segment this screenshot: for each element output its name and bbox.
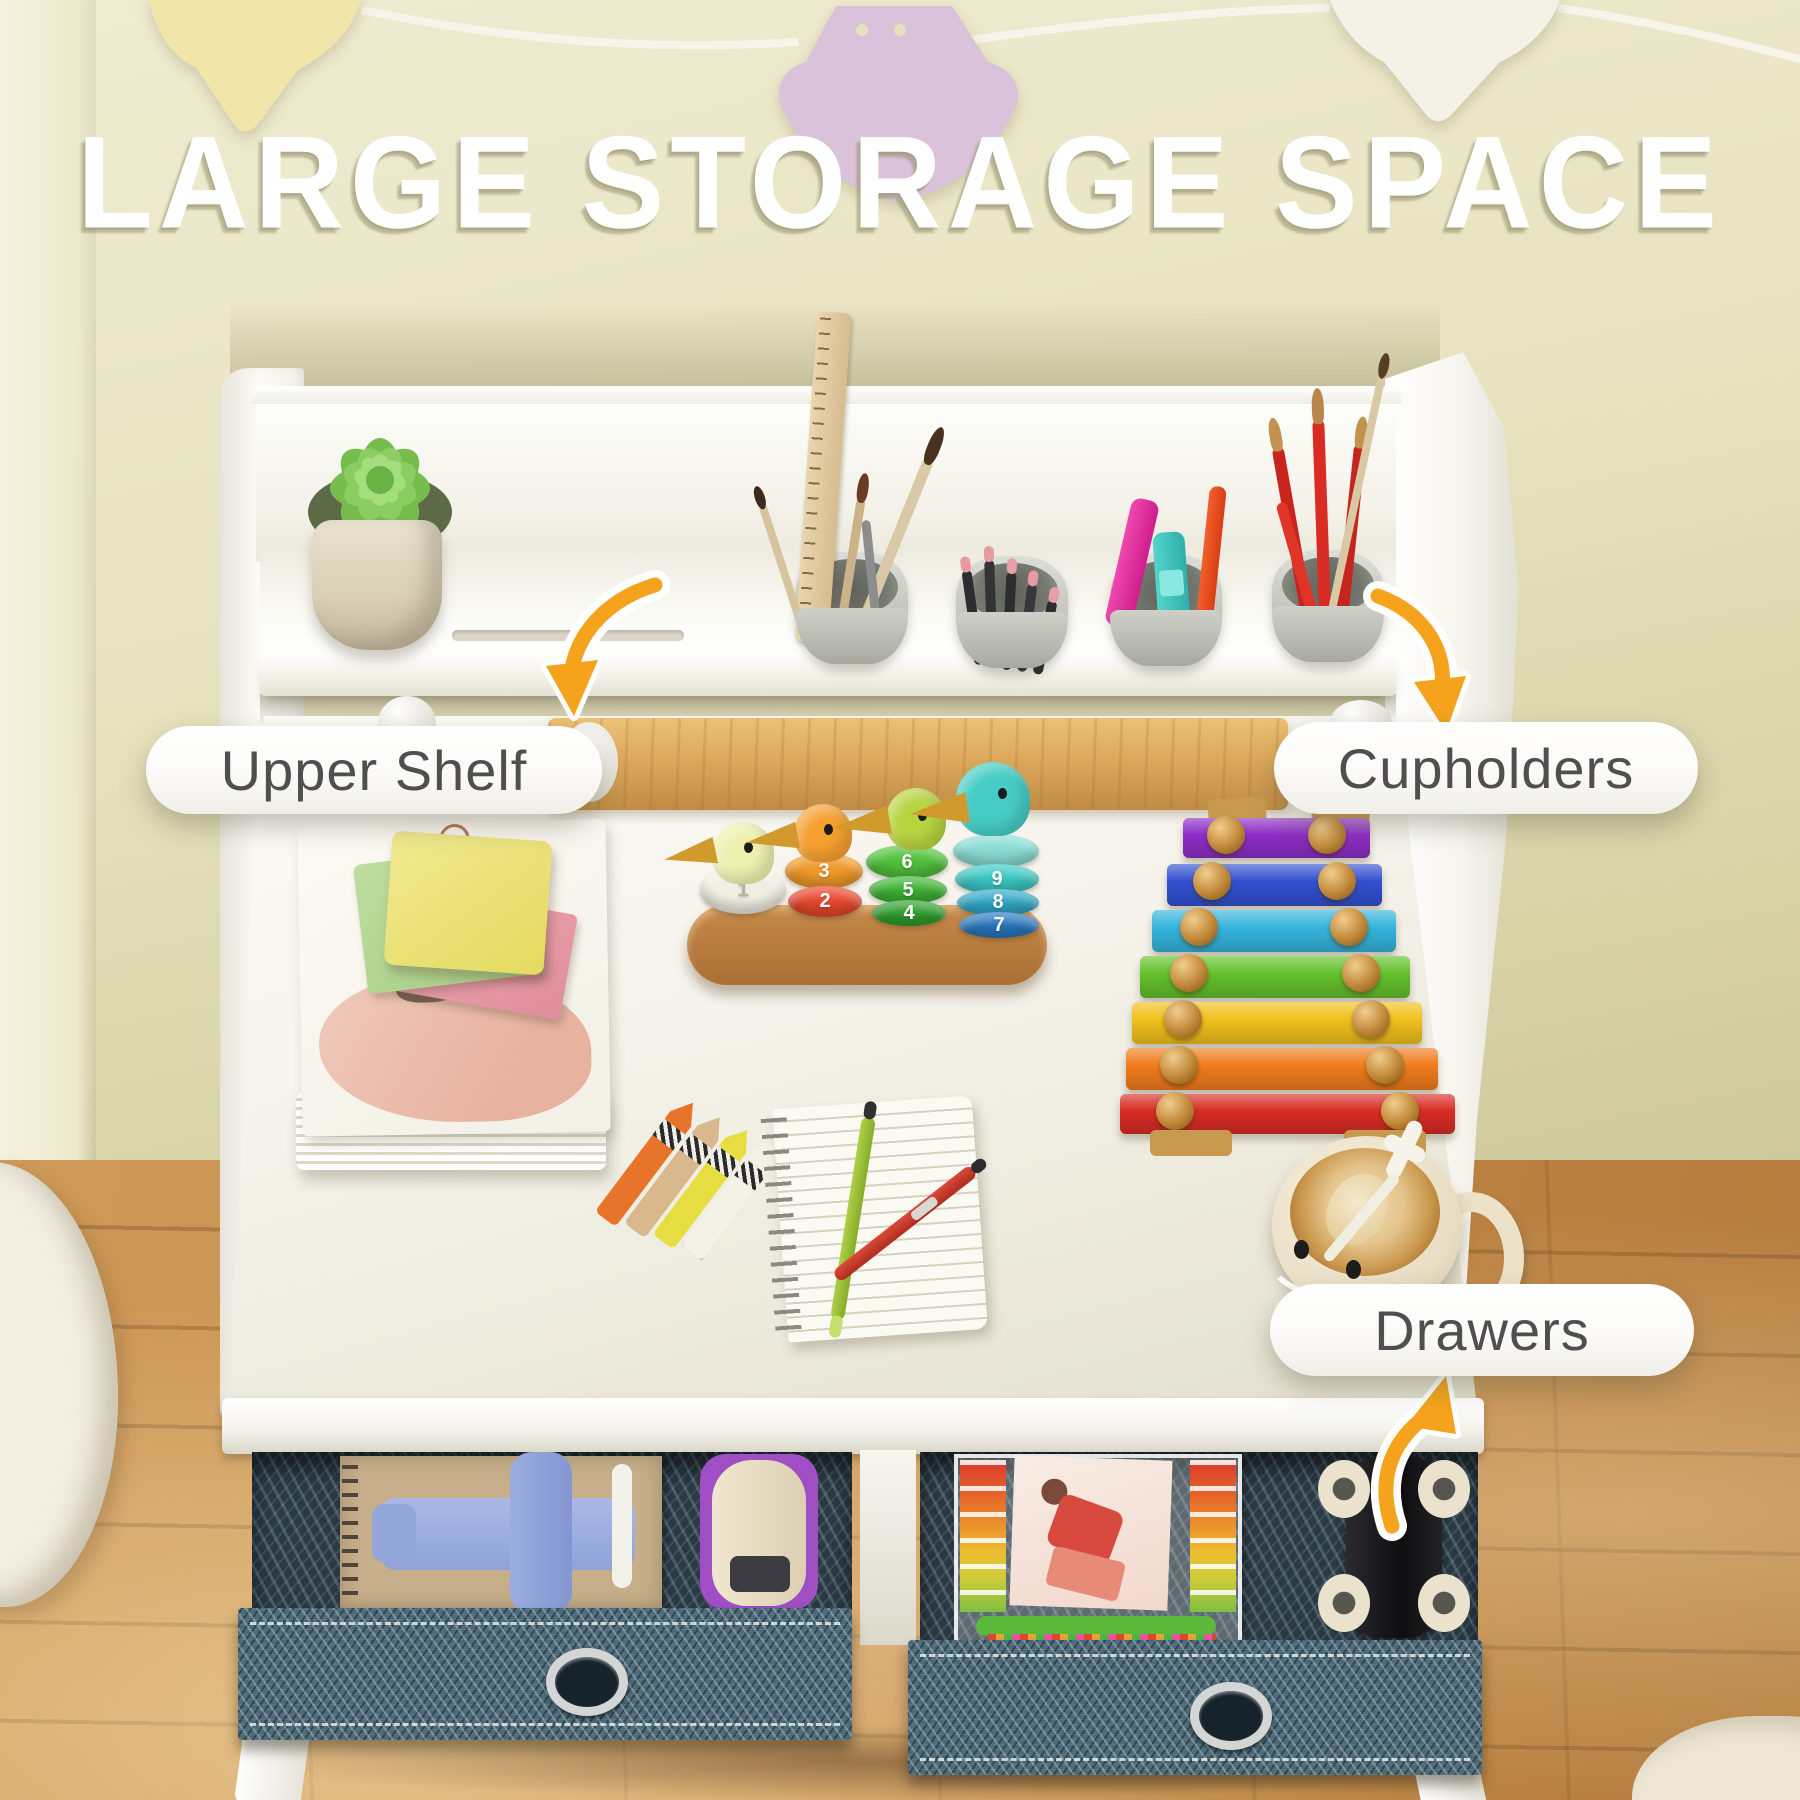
succulent-plant: [292, 392, 472, 567]
xylophone-knob: [1330, 908, 1368, 946]
duck-head: [794, 804, 852, 862]
marker-column: [960, 1460, 1006, 1612]
left-drawer-handle[interactable]: [546, 1648, 628, 1716]
green-marker-horizontal: [976, 1616, 1216, 1636]
drawer-divider: [860, 1450, 916, 1645]
duck-ring: [953, 834, 1039, 868]
xylophone-bar-green: [1140, 956, 1410, 998]
ice-cream-flag-white: [1328, 0, 1562, 121]
desk-front-apron: [222, 1398, 1484, 1454]
right-drawer-handle[interactable]: [1190, 1682, 1272, 1750]
airplane-fuselage: [510, 1452, 572, 1614]
duck-ring: 7: [959, 912, 1039, 938]
xylophone-knob: [1207, 816, 1245, 854]
xylophone-bar-yellow: [1132, 1002, 1422, 1044]
cupholders-label-text: Cupholders: [1338, 736, 1634, 801]
marker-band: [1159, 569, 1185, 597]
toy-airplane: [372, 1452, 652, 1614]
xylophone-knob: [1193, 862, 1231, 900]
airplane-tail: [372, 1504, 416, 1562]
duck-eye: [824, 824, 833, 835]
product-feature-image: LARGE STORAGE SPACE: [0, 0, 1800, 1800]
airplane-propeller: [612, 1464, 632, 1588]
xylophone-bar-blue: [1167, 864, 1382, 906]
duck-ring: 6: [866, 845, 948, 879]
duck-head: [956, 762, 1030, 836]
spiral-notebook: [772, 1095, 988, 1342]
duck-eye: [998, 788, 1007, 799]
xylophone-knob: [1342, 954, 1380, 992]
xylophone-bar-purple: [1183, 818, 1370, 858]
car-wheel: [1318, 1460, 1370, 1518]
right-drawer-front[interactable]: [908, 1640, 1482, 1775]
eraser-tip: [1006, 558, 1017, 575]
xylophone-foot: [1150, 1130, 1232, 1156]
marker-column: [1190, 1460, 1236, 1612]
duck-eye: [744, 842, 753, 853]
xylophone-knob: [1156, 1092, 1194, 1130]
xylophone-knob: [1352, 1000, 1390, 1038]
marker-box: [954, 1454, 1242, 1648]
sticky-notes-yellow: [384, 831, 553, 976]
xylophone-bar-orange: [1126, 1048, 1438, 1090]
airplane-wing: [380, 1498, 635, 1570]
drawers-label-text: Drawers: [1374, 1298, 1589, 1363]
toy-car-cream: [700, 1452, 820, 1612]
duck-head: [712, 822, 774, 884]
xylophone-bar-cyan: [1152, 910, 1396, 952]
cupholders-label: Cupholders: [1274, 722, 1698, 814]
xylophone-knob: [1164, 1000, 1202, 1038]
xylophone-knob: [1366, 1046, 1404, 1084]
duck-ring: 4: [872, 900, 946, 926]
toy-car-black: [1318, 1452, 1470, 1642]
illustration-desk: [1045, 1545, 1126, 1602]
left-drawer-interior[interactable]: [252, 1452, 852, 1614]
xylophone-knob: [1180, 908, 1218, 946]
car-wheel: [1418, 1460, 1470, 1518]
eraser-tip: [984, 546, 995, 562]
upper-shelf-label: Upper Shelf: [146, 726, 602, 814]
right-drawer-interior[interactable]: [920, 1452, 1478, 1642]
plant-pot: [312, 520, 442, 650]
stitch-line: [250, 1622, 840, 1625]
bunting-string: [362, 8, 1800, 62]
stitch-line: [920, 1758, 1470, 1761]
stitch-line: [250, 1723, 840, 1726]
xylophone-knob: [1318, 862, 1356, 900]
stitch-line: [920, 1654, 1470, 1657]
tablet-slot-groove: [452, 630, 684, 641]
headline-title: LARGE STORAGE SPACE: [0, 108, 1800, 259]
drawers-label: Drawers: [1270, 1284, 1694, 1376]
left-drawer-front[interactable]: [238, 1608, 852, 1740]
duck-head: [886, 788, 946, 850]
upper-shelf-label-text: Upper Shelf: [221, 738, 528, 803]
xylophone-knob: [1160, 1046, 1198, 1084]
marker-box-illustration-card: [1009, 1455, 1172, 1610]
duck-ring: 2: [788, 886, 862, 917]
car-windshield: [730, 1556, 790, 1592]
xylophone-knob: [1170, 954, 1208, 992]
kraft-spiral: [342, 1460, 358, 1604]
car-wheel: [1318, 1574, 1370, 1632]
car-wheel: [1418, 1574, 1470, 1632]
xylophone-knob: [1308, 816, 1346, 854]
